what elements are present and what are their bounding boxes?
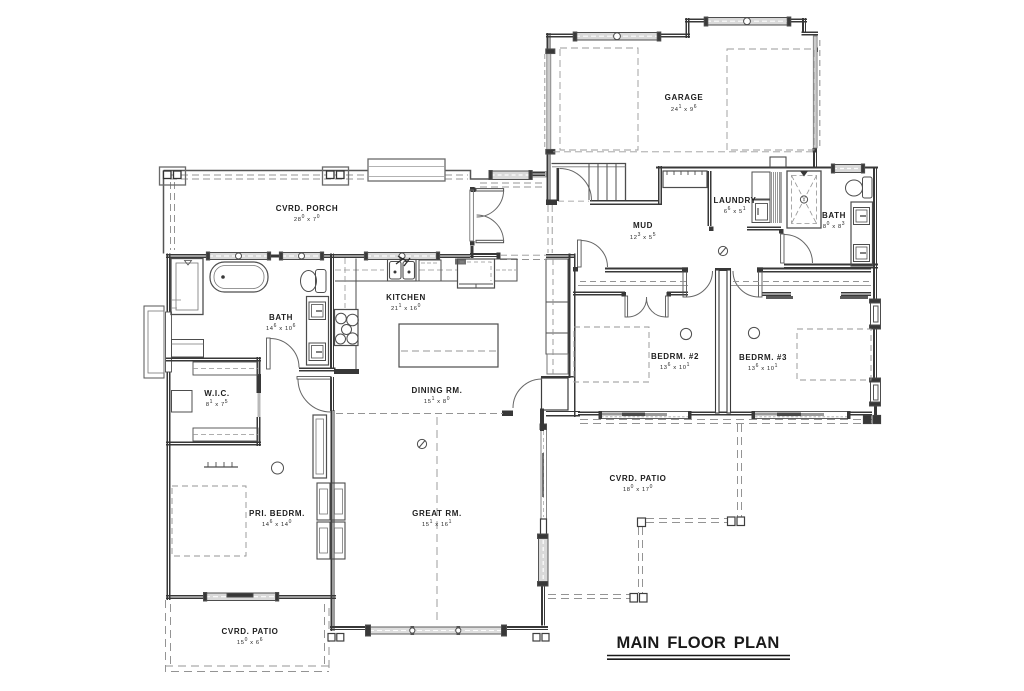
svg-text:CVRD. PORCH: CVRD. PORCH [276,204,339,213]
svg-text:CVRD. PATIO: CVRD. PATIO [610,474,667,483]
svg-text:BATH: BATH [822,211,846,220]
svg-text:BEDRM. #2: BEDRM. #2 [651,352,699,361]
svg-text:MAIN FLOOR PLAN: MAIN FLOOR PLAN [617,634,780,652]
svg-text:CVRD. PATIO: CVRD. PATIO [222,627,279,636]
svg-text:KITCHEN: KITCHEN [386,293,426,302]
svg-text:GREAT RM.: GREAT RM. [412,509,462,518]
svg-text:PRI. BEDRM.: PRI. BEDRM. [249,509,305,518]
svg-text:GARAGE: GARAGE [665,93,704,102]
svg-text:W.I.C.: W.I.C. [204,389,229,398]
svg-text:MUD: MUD [633,221,653,230]
svg-text:DINING RM.: DINING RM. [412,386,463,395]
svg-text:BATH: BATH [269,313,293,322]
svg-text:BEDRM. #3: BEDRM. #3 [739,353,787,362]
svg-text:LAUNDRY: LAUNDRY [713,196,756,205]
